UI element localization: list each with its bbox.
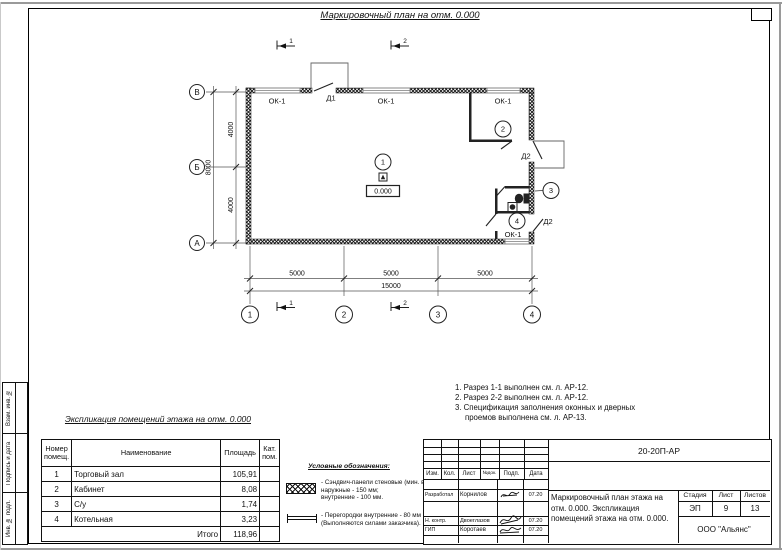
note-line: 2. Разрез 2-2 выполнен см. л. АР-12. (455, 393, 635, 403)
corner-box (751, 8, 772, 21)
side-porch (534, 141, 564, 168)
window-symbol (363, 88, 410, 93)
role-gip: ГИП (425, 525, 458, 535)
cell-room-number: 1 (42, 467, 72, 482)
header-area: Площадь (221, 440, 260, 467)
table-row: 2 Кабинет 8,08 (42, 482, 280, 497)
strip-cell-podpis: Подпись и дата (2, 433, 28, 492)
name-ncontr: Двоеглазов (460, 516, 497, 525)
page-edge-right (779, 2, 781, 550)
date-gip: 07.20 (523, 525, 548, 535)
page-title: Маркировочный план на отм. 0.000 (290, 10, 510, 21)
page-edge-top (0, 2, 782, 4)
note-line: 3. Спецификация заполнения оконных и две… (455, 403, 635, 413)
window-symbol (487, 88, 520, 93)
cell-total-area: 118,96 (221, 527, 260, 542)
cell-room-area: 8,08 (221, 482, 260, 497)
section-label-2-bottom: 2 (403, 300, 407, 307)
cell-room-category (260, 482, 280, 497)
section-label-2-top: 2 (403, 38, 407, 45)
section-label-1-bottom: 1 (289, 300, 293, 307)
axis-letter-b: Б (194, 163, 199, 172)
door2-label-a: Д2 (521, 152, 530, 161)
table-row: 1 Торговый зал 105,91 (42, 467, 280, 482)
legend-title: Условные обозначения: (308, 463, 390, 470)
floor-plan: 4000 4000 8000 В Б А 5000 5000 5000 1500… (185, 30, 575, 330)
window-symbol (255, 88, 300, 93)
sheet-label: Лист (712, 490, 740, 501)
cell-room-number: 4 (42, 512, 72, 527)
doc-number: 20-20П-АР (548, 440, 770, 461)
window-symbol (505, 239, 529, 244)
name-gip: Коротаев (460, 525, 497, 535)
stage-label: Стадия (678, 490, 712, 501)
axis-number-3: 3 (436, 310, 441, 319)
cell-room-number: 3 (42, 497, 72, 512)
window-label-4: ОК-1 (505, 230, 522, 239)
date-ncontr: 07.20 (523, 516, 548, 525)
col-kol: Кол. (441, 468, 458, 479)
note-line: проемов выполнена см. л. АР-13. (465, 413, 635, 423)
sandwich-panel-symbol (286, 483, 316, 494)
sheet-description: Маркировочный план этажа на отм. 0.000. … (551, 493, 675, 525)
window-label-1: ОК-1 (269, 97, 286, 106)
stage-value: ЭП (678, 501, 712, 516)
cell-room-category (260, 467, 280, 482)
room3-leader-line (535, 191, 543, 192)
door1-label: Д1 (326, 94, 335, 103)
room-number-3: 3 (549, 186, 553, 195)
axis-letter-a: А (194, 239, 200, 248)
signature-developer (499, 488, 522, 501)
notes-block: 1. Разрез 1-1 выполнен см. л. АР-12. 2. … (455, 383, 635, 423)
dim-4000-upper: 4000 (228, 122, 235, 138)
room-number-2: 2 (501, 125, 505, 134)
date-developer: 07.20 (523, 489, 548, 501)
cell-room-category (260, 527, 280, 542)
room-number-4: 4 (515, 217, 519, 226)
header-name: Наименование (72, 440, 221, 467)
col-izm: Изм. (424, 468, 441, 479)
section-label-1-top: 1 (289, 38, 293, 45)
partition-symbol-lines (287, 516, 317, 520)
header-room-number: Номер помещ. (42, 440, 72, 467)
dim-15000: 15000 (381, 283, 401, 290)
table-header-row: Номер помещ. Наименование Площадь Кат. п… (42, 440, 280, 467)
dimension-ticks-left (211, 89, 240, 246)
col-list: Лист (458, 468, 480, 479)
window-label-3: ОК-1 (495, 97, 512, 106)
side-strip: Взам. инв. № Подпись и дата Инв. № подл. (2, 382, 28, 545)
boiler-icon (508, 203, 517, 213)
axis-number-1: 1 (248, 310, 253, 319)
page-edge-left (0, 2, 1, 550)
table-row: 4 Котельная 3,23 (42, 512, 280, 527)
elevation-value: 0.000 (374, 189, 392, 196)
col-data: Дата (524, 468, 548, 479)
explication-title: Экспликация помещений этажа на отм. 0.00… (42, 414, 274, 424)
cell-room-name: Котельная (72, 512, 221, 527)
partition-symbol-cap (287, 514, 288, 523)
col-podp: Подп. (499, 468, 524, 479)
sheet-number: 9 (712, 501, 740, 516)
strip-label: Инв. № подл. (3, 493, 15, 544)
name-developer: Корнилов (460, 489, 497, 501)
cell-room-name: Кабинет (72, 482, 221, 497)
header-category: Кат. пом. (260, 440, 280, 467)
title-block: Изм. Кол. Лист №док. Подп. Дата Разработ… (423, 439, 772, 545)
dim-5000-2: 5000 (383, 271, 399, 278)
role-developer: Разработал (425, 489, 458, 501)
partition-symbol-cap (316, 514, 317, 523)
room-number-1: 1 (381, 158, 385, 167)
dim-5000-3: 5000 (477, 271, 493, 278)
door2-label-b: Д2 (543, 217, 552, 226)
axis-number-2: 2 (342, 310, 347, 319)
window-symbols (255, 88, 529, 244)
sheets-total: 13 (740, 501, 770, 516)
cell-room-number: 2 (42, 482, 72, 497)
partition-symbol (287, 514, 317, 523)
page-edge-bottom (0, 548, 782, 550)
dim-8000: 8000 (206, 160, 213, 176)
role-ncontr: Н. контр. (425, 516, 458, 525)
axis-number-4: 4 (530, 310, 535, 319)
strip-label: Взам. инв. № (3, 383, 15, 433)
cell-room-area: 105,91 (221, 467, 260, 482)
strip-cell-inv: Инв. № подл. (2, 492, 28, 545)
cell-total-label: Итого (42, 527, 221, 542)
window-label-2: ОК-1 (378, 97, 395, 106)
dim-5000-1: 5000 (289, 271, 305, 278)
axis-letter-v: В (194, 88, 199, 97)
table-row: 3 С/у 1,74 (42, 497, 280, 512)
cell-room-name: С/у (72, 497, 221, 512)
signature-gip (498, 524, 523, 536)
cell-room-area: 1,74 (221, 497, 260, 512)
drawing-sheet: Маркировочный план на отм. 0.000 (0, 0, 782, 551)
note-line: 1. Разрез 1-1 выполнен см. л. АР-12. (455, 383, 635, 393)
strip-label: Подпись и дата (3, 434, 15, 492)
cell-room-name: Торговый зал (72, 467, 221, 482)
company-name: ООО "Альянс" (678, 516, 770, 543)
explication-table: Номер помещ. Наименование Площадь Кат. п… (41, 439, 280, 542)
col-ndoc: №док. (480, 468, 499, 479)
dim-4000-lower: 4000 (228, 197, 235, 213)
cell-room-category (260, 512, 280, 527)
cell-room-area: 3,23 (221, 512, 260, 527)
table-total-row: Итого 118,96 (42, 527, 280, 542)
cell-room-category (260, 497, 280, 512)
strip-cell-vzam: Взам. инв. № (2, 382, 28, 433)
sheets-label: Листов (740, 490, 770, 501)
